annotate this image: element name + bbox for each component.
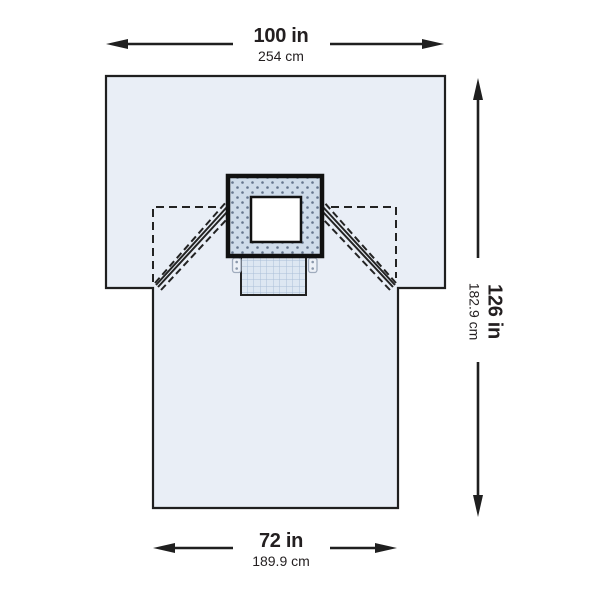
right-height-inches: 126 in	[485, 237, 505, 387]
top-width-label: 100 in 254 cm	[206, 26, 356, 63]
bottom-width-label: 72 in 189.9 cm	[206, 531, 356, 568]
bottom-width-inches: 72 in	[206, 531, 356, 551]
arrow-up-head	[473, 78, 483, 100]
right-height-label: 126 in 182.9 cm	[468, 237, 505, 387]
left-tube-holder-tab	[233, 258, 242, 273]
right-tube-holder-tab	[309, 258, 318, 273]
arrow-down-head	[473, 495, 483, 517]
right-height-cm: 182.9 cm	[468, 237, 482, 387]
arrow-left-head	[106, 39, 128, 49]
arrow-right-head	[422, 39, 444, 49]
arrow-left-head	[153, 543, 175, 553]
bottom-width-cm: 189.9 cm	[206, 554, 356, 568]
fenestration-window	[251, 197, 301, 242]
top-width-inches: 100 in	[206, 26, 356, 46]
arrow-right-head	[375, 543, 397, 553]
fluid-pouch	[241, 256, 306, 295]
product-diagram-canvas: 100 in 254 cm 126 in 182.9 cm 72 in 189.…	[0, 0, 600, 600]
drape-diagram-graphic	[0, 0, 600, 600]
top-width-cm: 254 cm	[206, 49, 356, 63]
